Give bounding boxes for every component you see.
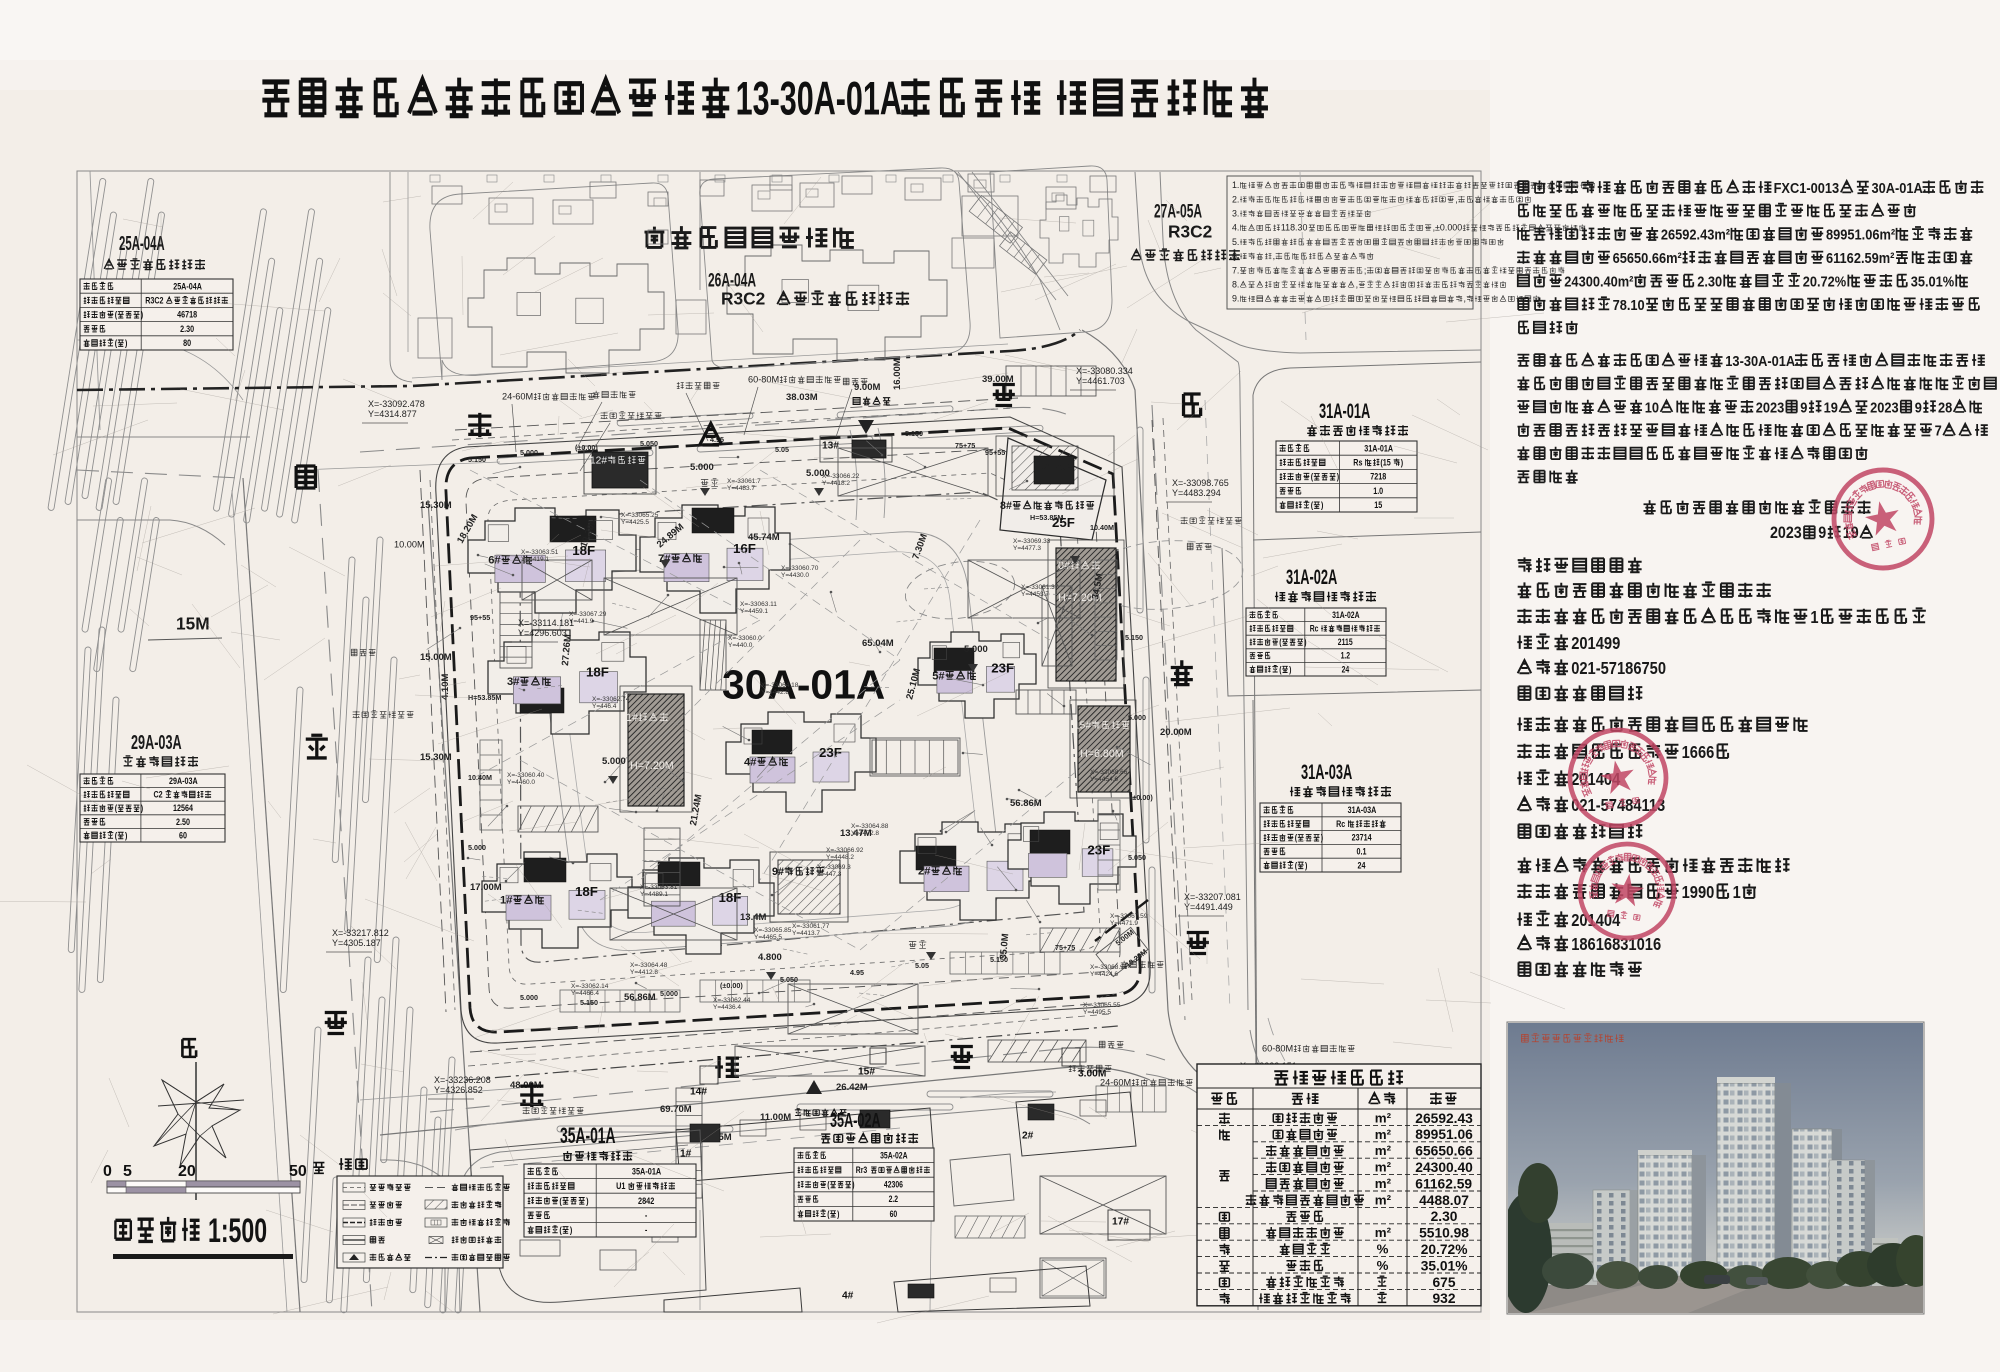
svg-text:23F: 23F xyxy=(991,660,1014,675)
svg-text:5.000: 5.000 xyxy=(806,468,830,479)
svg-text:9: 9 xyxy=(1800,398,1807,415)
svg-text:Rs: Rs xyxy=(1353,458,1363,468)
svg-text:Y=4296.603: Y=4296.603 xyxy=(518,628,567,638)
svg-text:): ) xyxy=(570,1224,573,1235)
svg-text:18F: 18F xyxy=(719,890,742,905)
svg-text:24300.40: 24300.40 xyxy=(1415,1160,1473,1175)
svg-text:R3C2: R3C2 xyxy=(1168,222,1212,242)
svg-text:3.: 3. xyxy=(1232,209,1239,219)
svg-text:H=53.85M: H=53.85M xyxy=(1030,513,1063,522)
svg-text:29A-03A: 29A-03A xyxy=(169,776,198,786)
svg-text:3.00M: 3.00M xyxy=(1078,1069,1106,1080)
svg-text:56.86M: 56.86M xyxy=(624,992,656,1003)
svg-text:15M: 15M xyxy=(176,614,210,634)
svg-text:5.050: 5.050 xyxy=(780,975,798,984)
svg-text:95+55: 95+55 xyxy=(470,613,490,622)
svg-text:(15: (15 xyxy=(1380,458,1391,468)
svg-text:): ) xyxy=(1321,833,1324,843)
svg-text:0.1: 0.1 xyxy=(1357,847,1367,857)
svg-text:13-30A-01A: 13-30A-01A xyxy=(1725,352,1795,369)
svg-text:95+55: 95+55 xyxy=(985,448,1005,457)
svg-text:): ) xyxy=(1321,500,1324,510)
svg-text:75+75: 75+75 xyxy=(955,441,975,450)
svg-text:1.: 1. xyxy=(1232,180,1239,190)
svg-text:X=-33061.77: X=-33061.77 xyxy=(792,923,830,930)
svg-text:5: 5 xyxy=(123,1163,132,1180)
svg-text:5.150: 5.150 xyxy=(580,998,598,1007)
svg-text:13.4M: 13.4M xyxy=(740,912,766,923)
svg-text:5.05: 5.05 xyxy=(775,445,789,454)
svg-text:Rc: Rc xyxy=(1336,819,1346,829)
svg-text:5.000: 5.000 xyxy=(660,989,678,998)
svg-text:61162.59m²: 61162.59m² xyxy=(1826,249,1895,266)
svg-text:Y=4483.7: Y=4483.7 xyxy=(727,485,755,492)
svg-text:15.30M: 15.30M xyxy=(420,500,452,511)
svg-text:0: 0 xyxy=(103,1163,112,1180)
svg-text:(: ( xyxy=(1311,500,1314,510)
svg-text:31A-01A: 31A-01A xyxy=(1364,443,1393,453)
svg-text:Y=4483.294: Y=4483.294 xyxy=(1172,488,1221,498)
svg-text:26.42M: 26.42M xyxy=(836,1082,868,1093)
svg-text:,: , xyxy=(1455,194,1457,204)
svg-text:9: 9 xyxy=(1915,398,1922,415)
svg-text:35A-02A: 35A-02A xyxy=(830,1109,881,1132)
svg-text:(: ( xyxy=(115,831,118,841)
svg-text:24: 24 xyxy=(1342,664,1350,674)
svg-text:5.150: 5.150 xyxy=(1125,633,1143,642)
svg-text:5.: 5. xyxy=(1232,237,1239,247)
svg-text:,: , xyxy=(1273,251,1275,261)
svg-text:1#: 1# xyxy=(500,895,513,907)
svg-text:35.01%: 35.01% xyxy=(1911,272,1955,289)
svg-text:15#: 15# xyxy=(858,1067,875,1078)
svg-text:35A-01A: 35A-01A xyxy=(632,1166,661,1177)
svg-text:20.00M: 20.00M xyxy=(1160,727,1192,738)
svg-text:9.00M: 9.00M xyxy=(854,382,880,393)
svg-text:(±0.00): (±0.00) xyxy=(1130,793,1153,802)
svg-text:2023: 2023 xyxy=(1870,398,1899,415)
svg-text:(±0.00): (±0.00) xyxy=(720,981,743,990)
svg-text:X=-33062.44: X=-33062.44 xyxy=(713,997,751,1004)
svg-text:4.800: 4.800 xyxy=(758,952,782,963)
svg-text:Y=4424.6: Y=4424.6 xyxy=(1090,971,1118,978)
svg-text:50: 50 xyxy=(289,1163,307,1180)
svg-text:30A-01A: 30A-01A xyxy=(1872,179,1923,196)
svg-text:4.: 4. xyxy=(1232,223,1239,233)
svg-text:R3C2: R3C2 xyxy=(145,296,164,306)
svg-text:H=6.80M: H=6.80M xyxy=(1080,748,1124,760)
svg-text:Y=4489.1: Y=4489.1 xyxy=(640,891,668,898)
svg-text:9: 9 xyxy=(1818,524,1826,542)
svg-text:X=-33061.37: X=-33061.37 xyxy=(1021,584,1059,591)
svg-text:X=-33207.081: X=-33207.081 xyxy=(1184,892,1241,902)
svg-text:X=-33060.0: X=-33060.0 xyxy=(728,635,762,642)
svg-text:8#: 8# xyxy=(1000,500,1012,512)
svg-text:13-30A-01A: 13-30A-01A xyxy=(736,73,902,125)
svg-text:61162.59: 61162.59 xyxy=(1415,1176,1472,1191)
svg-text:21.20M: 21.20M xyxy=(1042,462,1074,473)
svg-text:9.: 9. xyxy=(1232,294,1239,304)
svg-text:35A-02A: 35A-02A xyxy=(880,1151,908,1161)
svg-text:(: ( xyxy=(827,1209,830,1219)
svg-text:5#: 5# xyxy=(932,670,945,682)
svg-text:932: 932 xyxy=(1433,1291,1456,1306)
svg-text:): ) xyxy=(852,1180,855,1190)
svg-text:X=-33066.92: X=-33066.92 xyxy=(826,847,864,854)
svg-text:X=-33063.51: X=-33063.51 xyxy=(521,549,559,556)
svg-text:Y=4448.2: Y=4448.2 xyxy=(826,854,854,861)
svg-text:25A-04A: 25A-04A xyxy=(173,281,202,291)
svg-text:24300.40m²: 24300.40m² xyxy=(1564,272,1633,289)
svg-text:Y=4413.7: Y=4413.7 xyxy=(792,930,820,937)
svg-text:17#: 17# xyxy=(1112,1217,1129,1228)
svg-text:6#: 6# xyxy=(488,555,501,567)
svg-text:12#: 12# xyxy=(590,456,607,467)
svg-text:-: - xyxy=(645,1224,648,1235)
svg-text:15: 15 xyxy=(1374,500,1382,510)
svg-text:46718: 46718 xyxy=(177,310,197,320)
svg-text:7.: 7. xyxy=(1232,265,1239,275)
svg-text:1#: 1# xyxy=(680,1149,692,1160)
svg-text:X=-33062.14: X=-33062.14 xyxy=(571,983,609,990)
svg-text:Y=4454.6: Y=4454.6 xyxy=(1090,776,1118,783)
svg-text:m²: m² xyxy=(1375,1127,1392,1142)
svg-text:X=-33065.25: X=-33065.25 xyxy=(621,512,659,519)
svg-text:X=-33217.812: X=-33217.812 xyxy=(332,928,389,938)
svg-text:): ) xyxy=(125,338,128,348)
svg-text:89951.06m²: 89951.06m² xyxy=(1826,226,1895,243)
svg-text:27A-05A: 27A-05A xyxy=(1154,200,1202,222)
svg-text:23F: 23F xyxy=(819,745,842,760)
svg-text:65650.66: 65650.66 xyxy=(1415,1144,1473,1159)
svg-text:,±0.000: ,±0.000 xyxy=(1433,223,1463,233)
svg-text:38.03M: 38.03M xyxy=(786,392,818,403)
svg-text:Y=447.3: Y=447.3 xyxy=(817,871,842,878)
svg-text:(: ( xyxy=(1279,637,1282,647)
svg-text:35.01%: 35.01% xyxy=(1421,1258,1468,1273)
svg-text:Y=4466.4: Y=4466.4 xyxy=(571,990,599,997)
svg-text:Y=4453.7: Y=4453.7 xyxy=(1021,591,1049,598)
svg-text:2.30: 2.30 xyxy=(180,324,194,334)
svg-text:m²: m² xyxy=(1375,1176,1392,1191)
svg-text:4#: 4# xyxy=(842,1291,854,1302)
svg-text:): ) xyxy=(586,1195,589,1206)
svg-text:201499: 201499 xyxy=(1571,634,1620,653)
svg-text:2.: 2. xyxy=(1232,194,1239,204)
svg-text:16.00M: 16.00M xyxy=(892,358,903,390)
svg-text:5.000: 5.000 xyxy=(602,756,626,767)
svg-text:89951.06: 89951.06 xyxy=(1415,1127,1473,1142)
svg-text:Y=4425.5: Y=4425.5 xyxy=(621,519,649,526)
svg-text:): ) xyxy=(1305,860,1308,870)
svg-text:X=-33069.3: X=-33069.3 xyxy=(817,864,851,871)
svg-text:Y=4465.5: Y=4465.5 xyxy=(754,934,782,941)
svg-text:X=-33060.40: X=-33060.40 xyxy=(507,772,545,779)
svg-text:X=-33063.11: X=-33063.11 xyxy=(740,601,777,608)
svg-text:5.150: 5.150 xyxy=(905,429,923,438)
svg-text:X=-33068.96: X=-33068.96 xyxy=(1090,964,1128,971)
svg-text:20: 20 xyxy=(178,1163,196,1180)
svg-text:2.2: 2.2 xyxy=(889,1194,899,1204)
svg-text:m²: m² xyxy=(1375,1192,1392,1207)
svg-text:Y=4412.8: Y=4412.8 xyxy=(630,969,658,976)
svg-text:X=-33062.74: X=-33062.74 xyxy=(592,696,630,703)
svg-text:Y=440.0: Y=440.0 xyxy=(728,642,753,649)
svg-text:X=-33060.70: X=-33060.70 xyxy=(781,565,819,572)
svg-text:28: 28 xyxy=(1938,398,1952,415)
svg-text:(: ( xyxy=(827,1180,830,1190)
svg-text:60-80M: 60-80M xyxy=(1262,1044,1293,1054)
svg-text:Y=4430.0: Y=4430.0 xyxy=(781,572,809,579)
svg-text:Y=4460.0: Y=4460.0 xyxy=(507,779,535,786)
svg-text:2#: 2# xyxy=(918,866,931,878)
svg-text:Y=4471.9: Y=4471.9 xyxy=(1110,920,1138,927)
svg-text:X=-33080.334: X=-33080.334 xyxy=(1076,366,1133,376)
svg-text:16F: 16F xyxy=(733,541,756,556)
svg-text:Y=446.4: Y=446.4 xyxy=(592,703,617,710)
svg-text:Y=4314.877: Y=4314.877 xyxy=(368,409,417,419)
svg-text:5.150: 5.150 xyxy=(468,455,486,464)
svg-text:1.2: 1.2 xyxy=(1341,651,1351,661)
svg-text:26592.43: 26592.43 xyxy=(1415,1111,1473,1126)
svg-text:m²: m² xyxy=(1375,1225,1392,1240)
svg-text:1666: 1666 xyxy=(1682,743,1715,762)
svg-text:80: 80 xyxy=(183,338,191,348)
svg-text:Y=4326.852: Y=4326.852 xyxy=(434,1085,483,1095)
svg-text:m²: m² xyxy=(1375,1143,1392,1158)
svg-text:Y=4477.3: Y=4477.3 xyxy=(1013,545,1041,552)
svg-text:): ) xyxy=(141,803,144,813)
svg-text:4.10M: 4.10M xyxy=(440,674,451,700)
svg-text:Rc: Rc xyxy=(1310,624,1319,634)
svg-text:(: ( xyxy=(115,310,118,320)
svg-text:1#: 1# xyxy=(626,712,638,724)
svg-text:U1: U1 xyxy=(616,1180,626,1191)
svg-text:1:500: 1:500 xyxy=(208,1213,267,1250)
svg-text:X=-33067.29: X=-33067.29 xyxy=(569,611,607,618)
svg-text:24-60M: 24-60M xyxy=(502,392,533,402)
svg-text:X=-33067.59: X=-33067.59 xyxy=(1110,913,1148,920)
svg-text:Y=4495.5: Y=4495.5 xyxy=(1083,1009,1111,1016)
svg-text:8.: 8. xyxy=(1232,280,1239,290)
svg-text:Y=4461.703: Y=4461.703 xyxy=(1076,376,1125,386)
svg-text:13.47M: 13.47M xyxy=(840,828,872,839)
svg-text:2023: 2023 xyxy=(1756,398,1785,415)
svg-text:25A-04A: 25A-04A xyxy=(119,232,165,255)
svg-text:18F: 18F xyxy=(586,665,609,680)
svg-text:): ) xyxy=(837,1209,840,1219)
svg-text:5.050: 5.050 xyxy=(1128,853,1146,862)
svg-text:5.000: 5.000 xyxy=(468,843,486,852)
svg-text:2.30: 2.30 xyxy=(1431,1209,1458,1224)
svg-text:): ) xyxy=(1401,458,1404,468)
svg-text:4488.07: 4488.07 xyxy=(1419,1193,1469,1208)
svg-text:15#: 15# xyxy=(1074,721,1091,732)
svg-text:1990: 1990 xyxy=(1682,883,1715,902)
svg-text:2023: 2023 xyxy=(1770,524,1802,542)
svg-text:13#: 13# xyxy=(822,441,839,452)
svg-text:75+75: 75+75 xyxy=(1055,943,1075,952)
svg-text:19: 19 xyxy=(1824,398,1838,415)
svg-text:2115: 2115 xyxy=(1338,637,1353,647)
svg-text:(: ( xyxy=(1295,860,1298,870)
svg-text:6.: 6. xyxy=(1232,251,1239,261)
svg-text:31A-02A: 31A-02A xyxy=(1332,610,1360,620)
svg-text:15.00M: 15.00M xyxy=(420,652,452,663)
svg-text:X=-33064.18: X=-33064.18 xyxy=(761,682,799,689)
svg-text:X=-33098.765: X=-33098.765 xyxy=(1172,478,1229,488)
svg-text:14#: 14# xyxy=(690,1087,707,1098)
svg-text:Y=4459.1: Y=4459.1 xyxy=(740,608,768,615)
svg-text:): ) xyxy=(1337,472,1340,482)
svg-text:2.50: 2.50 xyxy=(176,817,190,827)
svg-text:m²: m² xyxy=(1375,1110,1392,1125)
svg-text:(: ( xyxy=(1311,472,1314,482)
svg-text:(: ( xyxy=(115,338,118,348)
svg-text:12564: 12564 xyxy=(173,803,193,813)
svg-text:5510.98: 5510.98 xyxy=(1419,1226,1469,1241)
svg-text:5.050: 5.050 xyxy=(640,439,658,448)
svg-text:31A-03A: 31A-03A xyxy=(1301,760,1353,784)
svg-text:Y=4305.187: Y=4305.187 xyxy=(332,938,381,948)
svg-text:45.74M: 45.74M xyxy=(748,532,780,543)
svg-text:18F: 18F xyxy=(575,884,598,899)
svg-text:1: 1 xyxy=(1810,608,1818,627)
svg-text:60: 60 xyxy=(890,1209,898,1219)
svg-text:31A-03A: 31A-03A xyxy=(1348,805,1377,815)
svg-text:65650.66m²: 65650.66m² xyxy=(1613,249,1682,266)
svg-text:5.000: 5.000 xyxy=(520,993,538,1002)
svg-text:): ) xyxy=(1304,637,1307,647)
svg-text:5.000: 5.000 xyxy=(690,462,714,473)
svg-text:R3C2: R3C2 xyxy=(721,289,765,309)
svg-text:5.000: 5.000 xyxy=(964,644,988,655)
svg-text:15.30M: 15.30M xyxy=(420,752,452,763)
svg-text:118.30: 118.30 xyxy=(1281,223,1308,233)
svg-text:2842: 2842 xyxy=(638,1195,655,1206)
svg-text:29A-03A: 29A-03A xyxy=(131,731,182,754)
svg-text:Y=4418.2: Y=4418.2 xyxy=(822,480,850,487)
svg-text:m²: m² xyxy=(1375,1160,1392,1175)
svg-text:1: 1 xyxy=(1733,883,1741,902)
svg-text:X=-33065.85: X=-33065.85 xyxy=(754,927,792,934)
svg-text:(: ( xyxy=(1279,664,1282,674)
svg-text:021-57186750: 021-57186750 xyxy=(1571,659,1666,678)
svg-text:2#: 2# xyxy=(1022,1131,1034,1142)
svg-text:H=7.20M: H=7.20M xyxy=(630,760,674,772)
svg-text:FXC1-0013: FXC1-0013 xyxy=(1774,179,1840,196)
svg-text:20.72%: 20.72% xyxy=(1803,272,1847,289)
svg-text:H=53.85M: H=53.85M xyxy=(468,693,501,702)
svg-text:1.0: 1.0 xyxy=(1373,486,1383,496)
svg-text:10.40M: 10.40M xyxy=(1090,523,1114,532)
svg-text:2.30: 2.30 xyxy=(1697,272,1722,289)
svg-text:31A-02A: 31A-02A xyxy=(1286,565,1338,589)
svg-text:30A-01A: 30A-01A xyxy=(722,661,885,707)
svg-text:,: , xyxy=(1464,294,1466,304)
svg-text:24: 24 xyxy=(1358,860,1366,870)
svg-text:Y=4491.449: Y=4491.449 xyxy=(1184,902,1233,912)
svg-text:17.00M: 17.00M xyxy=(470,882,502,893)
svg-text:4.95: 4.95 xyxy=(850,968,864,977)
svg-text:5.05: 5.05 xyxy=(915,961,929,970)
svg-text:675: 675 xyxy=(1433,1275,1456,1290)
svg-text:C2: C2 xyxy=(154,790,164,800)
svg-text:31A-01A: 31A-01A xyxy=(1319,399,1371,423)
svg-text:(: ( xyxy=(559,1224,562,1235)
svg-text:20.72%: 20.72% xyxy=(1421,1242,1468,1257)
svg-text:-: - xyxy=(645,1209,648,1220)
svg-text:65.04M: 65.04M xyxy=(862,638,894,649)
svg-text:26592.43m²: 26592.43m² xyxy=(1661,226,1730,243)
svg-text:60: 60 xyxy=(179,831,187,841)
svg-text:7: 7 xyxy=(1935,422,1942,439)
svg-text:9#: 9# xyxy=(772,866,784,878)
svg-text:%: % xyxy=(1377,1258,1389,1273)
svg-text:X=-33092.478: X=-33092.478 xyxy=(368,399,425,409)
svg-text:78.10: 78.10 xyxy=(1613,296,1645,313)
svg-text:Y=4436.4: Y=4436.4 xyxy=(713,1004,741,1011)
svg-text:): ) xyxy=(1289,664,1292,674)
svg-text:35.0M: 35.0M xyxy=(998,933,1011,960)
svg-text:4#: 4# xyxy=(744,757,757,769)
svg-text:7218: 7218 xyxy=(1370,472,1386,482)
svg-text:5.000: 5.000 xyxy=(520,448,538,457)
svg-text:56.86M: 56.86M xyxy=(1010,798,1042,809)
svg-text:10.40M: 10.40M xyxy=(468,773,492,782)
svg-text:35A-01A: 35A-01A xyxy=(560,1122,616,1147)
svg-text:X=-33068.66: X=-33068.66 xyxy=(1090,769,1128,776)
svg-text:Y=4442.8: Y=4442.8 xyxy=(761,689,789,696)
svg-text:,: , xyxy=(1356,280,1358,290)
svg-text:10: 10 xyxy=(1645,398,1659,415)
svg-text:;: ; xyxy=(1364,265,1366,275)
svg-text:Rr3: Rr3 xyxy=(856,1165,868,1175)
svg-text:5.000: 5.000 xyxy=(1128,713,1146,722)
svg-text:): ) xyxy=(125,831,128,841)
svg-text:(: ( xyxy=(115,803,118,813)
svg-text:): ) xyxy=(141,310,144,320)
svg-text:42306: 42306 xyxy=(884,1180,904,1190)
svg-text:X=-33069.33: X=-33069.33 xyxy=(1013,538,1051,545)
svg-text:X=-33236.208: X=-33236.208 xyxy=(434,1075,491,1085)
svg-text:%: % xyxy=(1377,1242,1389,1257)
svg-text:X=-33063.81: X=-33063.81 xyxy=(640,884,678,891)
svg-text:10.00M: 10.00M xyxy=(394,540,425,550)
svg-text:X=-33114.181: X=-33114.181 xyxy=(518,618,574,628)
svg-text:3#: 3# xyxy=(507,676,520,688)
svg-text:23714: 23714 xyxy=(1352,833,1372,843)
svg-text:(: ( xyxy=(559,1195,562,1206)
